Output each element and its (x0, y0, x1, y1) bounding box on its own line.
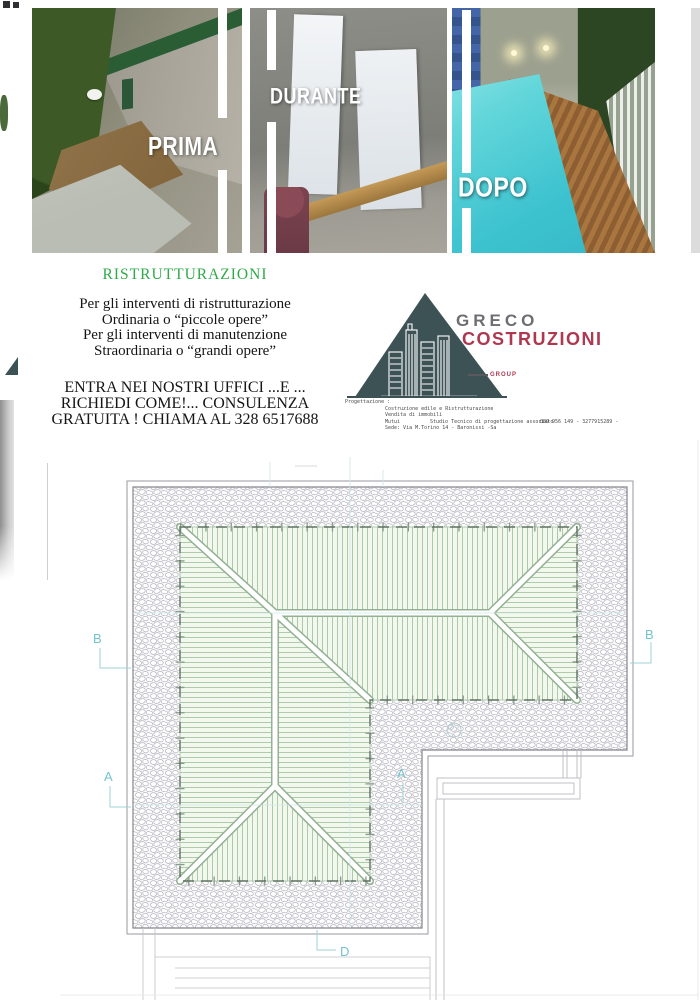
decor-bar (462, 208, 471, 253)
wall-light (511, 50, 517, 56)
decor-bar (218, 170, 227, 253)
group-underline (468, 374, 488, 376)
photo-label-during: DURANTE (270, 84, 362, 110)
marker-a-inner: A (397, 766, 406, 781)
roof-plan-drawing: B B A A D (0, 440, 700, 1000)
promo-cta: ENTRA NEI NOSTRI UFFICI ...E ... RICHIED… (35, 380, 335, 427)
promo-body: Per gli interventi di ristrutturazione O… (35, 297, 335, 359)
logo-baseline-rule (347, 396, 507, 398)
corner-mark (3, 1, 10, 8)
notch-deck (436, 750, 581, 1000)
decor-bar (267, 122, 276, 253)
promo-body-line: Per gli interventi di ristrutturazione (35, 297, 335, 313)
marker-b-right: B (645, 627, 654, 642)
left-edge-triangle (5, 357, 18, 375)
promo-cta-line: RICHIEDI COME!... CONSULENZA (35, 396, 335, 412)
logo-group-row: GROUP (468, 372, 517, 378)
corner-mark (13, 2, 19, 8)
promo-body-line: Ordinaria o “piccole opere” (35, 313, 335, 329)
logo-name-greco: GRECO (456, 311, 538, 331)
flyer-page: PRIMA DURANTE DOPO RISTRUTTURAZIONI Per … (0, 0, 700, 1000)
logo-name-costruzioni: COSTRUZIONI (462, 329, 603, 350)
logo-group-label: GROUP (490, 372, 517, 378)
promo-cta-line: ENTRA NEI NOSTRI UFFICI ...E ... (35, 380, 335, 396)
promo-cta-line: GRATUITA ! CHIAMA AL 328 6517688 (35, 412, 335, 428)
promo-body-line: Per gli interventi di manutenzione (35, 328, 335, 344)
photo-after: DOPO (452, 8, 655, 253)
promo-body-line: Straordinaria o “grandi opere” (35, 344, 335, 360)
decor-bar (267, 10, 276, 70)
green-door (122, 78, 133, 110)
contact-block: Progettazione : Costruzione edile e Rist… (345, 399, 675, 432)
contact-phones: 089 956 149 - 3277915289 - (540, 419, 618, 426)
marker-b-left: B (93, 631, 102, 646)
photo-during: DURANTE (250, 8, 447, 253)
marker-a-left: A (104, 769, 113, 784)
contact-address: Sede: Via M.Torino 14 - Baronissi -Sa (385, 425, 675, 432)
photo-label-before: PRIMA (148, 133, 218, 162)
photo-label-after: DOPO (458, 171, 528, 204)
satellite-dish (87, 89, 102, 100)
promo-heading: RISTRUTTURAZIONI (35, 266, 335, 284)
decor-bar (462, 10, 471, 173)
photo-before: PRIMA (32, 8, 242, 253)
foliage-edge-blob (0, 95, 8, 131)
promo-text-block: RISTRUTTURAZIONI Per gli interventi di r… (35, 266, 335, 427)
decor-bar (218, 8, 227, 118)
stairs-lines (143, 928, 430, 1000)
page-edge-strip (691, 8, 700, 253)
